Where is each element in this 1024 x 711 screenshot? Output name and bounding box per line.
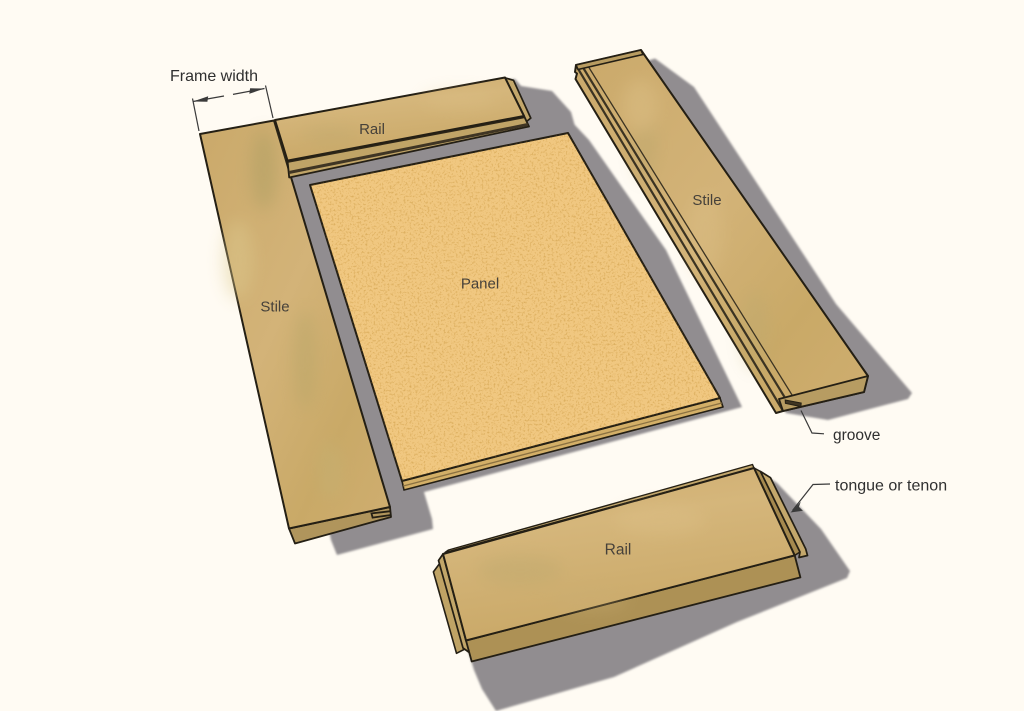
svg-text:Stile: Stile (692, 192, 721, 209)
svg-text:Frame width: Frame width (170, 68, 258, 85)
svg-text:Panel: Panel (461, 276, 499, 293)
svg-text:groove: groove (833, 427, 880, 444)
svg-text:Rail: Rail (605, 542, 632, 559)
svg-text:Stile: Stile (260, 299, 289, 316)
svg-text:tongue or tenon: tongue or tenon (835, 478, 947, 495)
svg-text:Rail: Rail (359, 121, 385, 138)
